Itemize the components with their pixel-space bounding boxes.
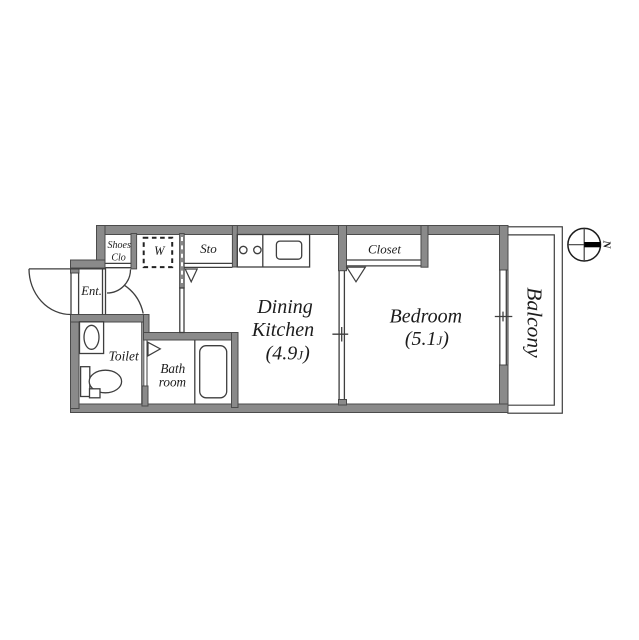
svg-text:W: W — [154, 244, 166, 258]
svg-text:Sto: Sto — [200, 241, 217, 256]
svg-text:Dining: Dining — [256, 296, 313, 318]
svg-text:room: room — [159, 374, 186, 389]
svg-text:Bedroom: Bedroom — [390, 305, 463, 327]
svg-text:Clo: Clo — [111, 252, 125, 263]
svg-text:Ent.: Ent. — [80, 284, 102, 298]
svg-text:N: N — [601, 240, 613, 250]
svg-text:Toilet: Toilet — [109, 349, 139, 364]
svg-text:Kitchen: Kitchen — [251, 319, 314, 341]
svg-text:Balcony: Balcony — [523, 287, 547, 358]
svg-text:(4.9J): (4.9J) — [266, 343, 310, 365]
svg-text:Closet: Closet — [368, 242, 401, 256]
svg-text:Shoes: Shoes — [108, 240, 131, 251]
svg-text:(5.1J): (5.1J) — [405, 328, 449, 350]
